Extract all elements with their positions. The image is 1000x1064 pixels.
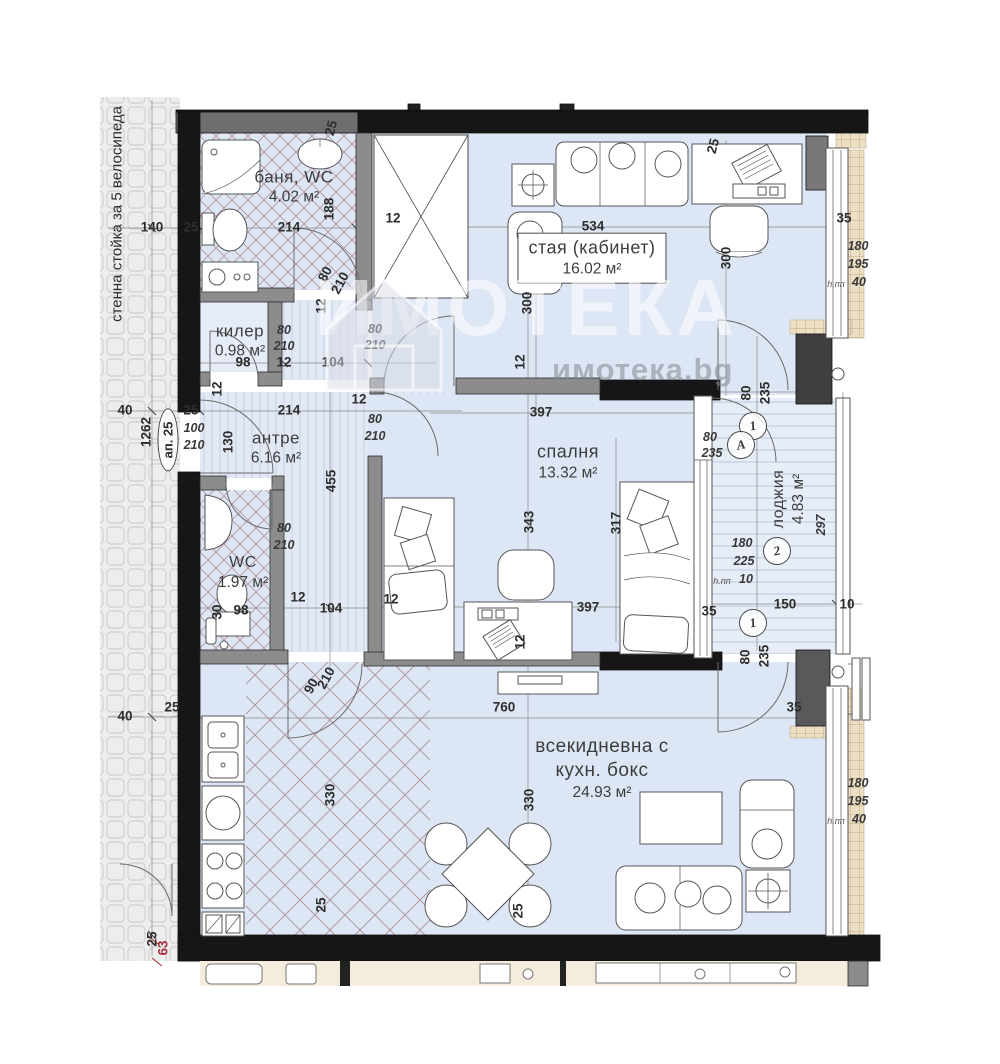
dimension-label: 80 bbox=[277, 521, 291, 535]
dimension-label: 12 bbox=[351, 392, 366, 407]
dimension-label: 317 bbox=[609, 512, 624, 535]
room-area: 24.93 м² bbox=[535, 783, 668, 803]
dimension-label: 300 bbox=[719, 247, 734, 270]
dimension-label: 63 bbox=[156, 940, 171, 955]
room-area: 0.98 м² bbox=[215, 342, 265, 362]
room-label-bedroom: спалня13.32 м² bbox=[537, 441, 599, 484]
dimension-label: 100 bbox=[184, 421, 205, 435]
dimension-label: 30 bbox=[210, 604, 225, 619]
dimension-label: 80 bbox=[703, 430, 717, 444]
dimension-label: 397 bbox=[530, 405, 553, 420]
room-label-wc: WC1.97 м² bbox=[218, 553, 268, 593]
room-label-loggia: лоджия4.83 м² bbox=[769, 470, 809, 529]
dimension-label: 10 bbox=[739, 572, 753, 586]
dimension-label: 330 bbox=[522, 789, 537, 812]
room-name: спалня bbox=[537, 441, 599, 464]
dimension-label: 10 bbox=[839, 597, 854, 612]
dimension-label: 214 bbox=[278, 220, 301, 235]
room-name: WC bbox=[218, 553, 268, 573]
dimension-label: 214 bbox=[278, 403, 301, 418]
room-label-hall: антре6.16 м² bbox=[251, 427, 301, 468]
dimension-label: 180 bbox=[848, 776, 869, 790]
dimension-label: 235 bbox=[757, 645, 772, 668]
room-area: 16.02 м² bbox=[528, 259, 655, 279]
room-area: 4.83 м² bbox=[789, 470, 809, 529]
dimension-label: 104 bbox=[322, 355, 345, 370]
dimension-label: 40 bbox=[852, 275, 866, 289]
apartment-number-badge: ап. 25 bbox=[158, 409, 179, 472]
dimension-label: 180 bbox=[732, 536, 753, 550]
room-label-closet: килер0.98 м² bbox=[215, 320, 265, 361]
dimension-label: h.пп bbox=[827, 279, 844, 289]
dimension-label: 40 bbox=[852, 812, 866, 826]
dimension-label: 534 bbox=[582, 219, 605, 234]
dimension-label: 25 bbox=[314, 897, 329, 912]
dimension-label: 210 bbox=[274, 538, 295, 552]
room-area: 6.16 м² bbox=[251, 449, 301, 469]
room-name: килер bbox=[215, 320, 265, 341]
room-label-bath: баня, WC4.02 м² bbox=[254, 166, 333, 207]
dimension-label: 235 bbox=[702, 446, 723, 460]
dimension-label: 455 bbox=[324, 470, 339, 493]
dimension-label: 80 bbox=[277, 323, 291, 337]
dimension-label: 12 bbox=[383, 592, 398, 607]
room-label-living: всекидневна скухн. бокс24.93 м² bbox=[535, 735, 668, 803]
dimension-label: 12 bbox=[314, 298, 329, 313]
dimension-label: 130 bbox=[221, 431, 236, 454]
dimension-label: 80 bbox=[739, 385, 754, 400]
dimension-label: 140 bbox=[141, 220, 164, 235]
adjacent-apartment-strip bbox=[200, 961, 868, 986]
dimension-label: 35 bbox=[836, 211, 851, 226]
dimension-label: h.пп bbox=[827, 816, 844, 826]
dimension-label: 25 bbox=[511, 903, 526, 918]
dimension-label: 343 bbox=[522, 511, 537, 534]
dimension-label: 225 bbox=[734, 554, 755, 568]
dimension-label: 80 bbox=[368, 322, 382, 336]
dimension-label: 12 bbox=[290, 590, 305, 605]
room-name: стая (кабинет) bbox=[528, 237, 655, 260]
dimension-label: 235 bbox=[758, 382, 773, 405]
dimension-label: 12 bbox=[276, 355, 291, 370]
dimension-label: 80 bbox=[368, 412, 382, 426]
room-area: 4.02 м² bbox=[254, 188, 333, 208]
dimension-label: h.пп bbox=[713, 576, 730, 586]
dimension-label: 195 bbox=[848, 257, 869, 271]
dimension-label: 12 bbox=[210, 381, 225, 396]
dimension-label: 210 bbox=[274, 339, 295, 353]
dimension-label: 12 bbox=[385, 211, 400, 226]
dimension-label: 297 bbox=[814, 515, 828, 536]
room-name: всекидневна с bbox=[535, 735, 668, 759]
dimension-label: 330 bbox=[323, 784, 338, 807]
dimension-label: 210 bbox=[365, 429, 386, 443]
room-name: баня, WC bbox=[254, 166, 333, 187]
dimension-label: 25 bbox=[183, 403, 198, 418]
dimension-label: 300 bbox=[520, 292, 535, 315]
dimension-label: 12 bbox=[513, 354, 528, 369]
kitchen-units bbox=[202, 716, 244, 936]
dimension-label: 210 bbox=[365, 338, 386, 352]
dimension-label: 25 bbox=[183, 220, 198, 235]
dimension-label: 12 bbox=[513, 634, 528, 649]
room-name: антре bbox=[251, 427, 301, 448]
dimension-label: 180 bbox=[848, 239, 869, 253]
dimension-label: 210 bbox=[184, 438, 205, 452]
dimension-label: 25 bbox=[164, 700, 179, 715]
room-label-office: стая (кабинет)16.02 м² bbox=[517, 233, 666, 284]
bike-stand-note: стенна стойка за 5 велосипеда bbox=[109, 106, 126, 322]
dimension-label: 40 bbox=[117, 403, 132, 418]
floor-plan-drawing bbox=[0, 0, 1000, 1064]
dimension-label: 760 bbox=[493, 700, 516, 715]
room-area: 1.97 м² bbox=[218, 573, 268, 593]
room-name: кухн. бокс bbox=[535, 759, 668, 783]
dimension-label: 1262 bbox=[139, 417, 154, 447]
room-area: 13.32 м² bbox=[537, 463, 599, 483]
dimension-label: 150 bbox=[774, 597, 797, 612]
dimension-label: 80 bbox=[738, 649, 753, 664]
dimension-label: 104 bbox=[320, 601, 343, 616]
dimension-label: 40 bbox=[117, 709, 132, 724]
floor-plan: ИМОТЕКА имотека.bg стенна стойка за 5 ве… bbox=[0, 0, 1000, 1064]
dimension-label: 35 bbox=[786, 700, 801, 715]
dimension-label: 397 bbox=[577, 600, 600, 615]
dimension-label: 98 bbox=[233, 603, 248, 618]
dimension-label: 35 bbox=[701, 604, 716, 619]
room-name: лоджия bbox=[769, 470, 789, 529]
dimension-label: 195 bbox=[848, 794, 869, 808]
